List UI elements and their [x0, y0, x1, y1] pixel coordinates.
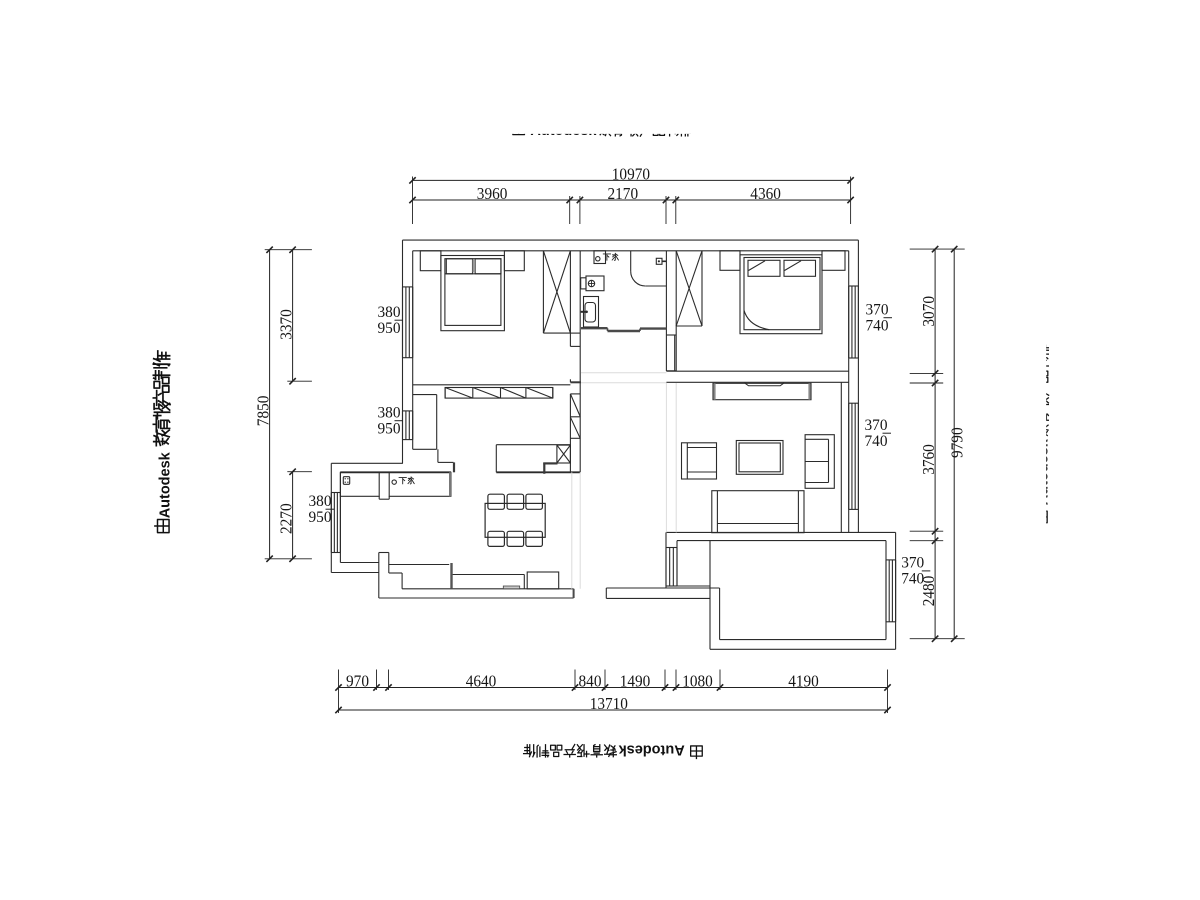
svg-text:950: 950 [378, 319, 401, 337]
svg-text:970: 970 [346, 671, 369, 690]
svg-text:740: 740 [865, 432, 888, 450]
svg-text:3960: 3960 [477, 184, 508, 203]
svg-text:1490: 1490 [620, 671, 651, 690]
svg-text:2270: 2270 [276, 503, 295, 534]
svg-text:7850: 7850 [254, 396, 273, 427]
svg-text:13710: 13710 [590, 694, 628, 713]
svg-text:3070: 3070 [919, 296, 938, 327]
svg-text:3760: 3760 [919, 444, 938, 475]
svg-text:9790: 9790 [948, 427, 967, 458]
svg-text:4190: 4190 [788, 671, 819, 690]
svg-text:950: 950 [309, 508, 332, 526]
svg-text:10970: 10970 [612, 165, 650, 184]
svg-text:Autodesk: Autodesk [1036, 438, 1052, 505]
svg-text:740: 740 [866, 317, 889, 335]
svg-text:Autodesk: Autodesk [530, 123, 597, 139]
svg-text:Autodesk: Autodesk [618, 742, 685, 758]
svg-text:950: 950 [378, 420, 401, 438]
svg-text:3370: 3370 [276, 309, 295, 340]
svg-text:840: 840 [579, 671, 602, 690]
svg-text:4640: 4640 [466, 671, 497, 690]
svg-text:Autodesk: Autodesk [158, 451, 174, 518]
svg-text:1080: 1080 [682, 671, 713, 690]
svg-text:740: 740 [901, 570, 924, 588]
svg-text:2170: 2170 [608, 184, 639, 203]
svg-text:4360: 4360 [750, 184, 781, 203]
